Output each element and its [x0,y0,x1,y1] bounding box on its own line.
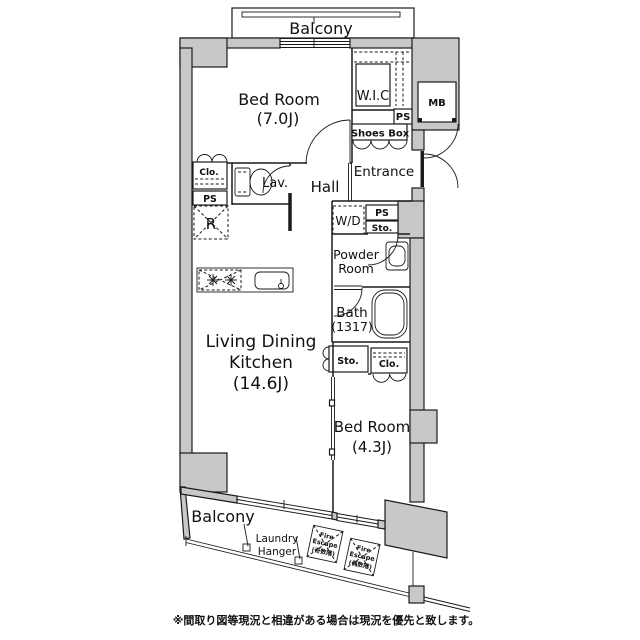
shoes-box-door-arcs [353,140,407,149]
label-ldk-line2: Kitchen [229,353,293,373]
label-washer-dryer: W/D [335,214,360,228]
closet-main-door-arcs [197,155,227,163]
faucet [279,284,284,289]
label-mb: MB [428,98,446,109]
top-window [280,38,350,48]
label-ldk-size: (14.6J) [233,374,289,394]
label-closet-main: Clo. [199,168,218,178]
floor-plan-page: Fire Escape (奇数階) Fire Escape (偶数階) Balc… [0,0,640,640]
label-wic: W.I.C [357,89,390,104]
label-closet-bed2: Clo. [379,359,399,370]
label-refrigerator: R [206,215,216,233]
label-balcony-top: Balcony [289,19,352,38]
entrance-door [421,124,459,188]
label-laundry-line1: Laundry [256,533,299,545]
lavatory-walls [232,163,290,231]
label-bedroom-second-size: (4.3J) [352,438,392,456]
entrance-door-leaf [421,151,425,187]
label-bedroom-main: Bed Room [238,90,320,109]
label-balcony-bottom: Balcony [191,507,254,526]
kitchen-counter [197,268,293,292]
label-powder-line1: Powder [333,247,380,262]
storage-ldk-door-arcs [323,347,329,371]
bedroom-main-door-arc [306,120,350,164]
label-entrance: Entrance [354,164,415,180]
closet-bed2-door-arcs [373,374,406,382]
label-ps-top: PS [396,112,411,123]
label-ps-left: PS [203,194,217,205]
bedroom2-window [337,513,378,528]
label-bedroom-second: Bed Room [334,418,411,436]
laundry-pole-1 [243,524,250,551]
label-laundry-line2: Hanger [258,546,297,558]
label-ps-mid: PS [375,208,389,219]
label-storage-ldk: Sto. [337,356,359,367]
fire-escape-hatch-even: Fire Escape (偶数階) [344,538,380,576]
label-lavatory: Lav. [262,176,288,191]
footnote: ※間取り図等現況と相違がある場合は現況を優先と致します。 [173,613,480,627]
fire-escape-hatch-odd: Fire Escape (奇数階) [307,525,343,563]
label-powder-line2: Room [338,261,374,276]
floor-plan: Fire Escape (奇数階) Fire Escape (偶数階) Balc… [0,0,640,640]
label-bath-size: (1317) [331,319,373,334]
label-shoes-box: Shoes Box [351,129,410,140]
label-bedroom-main-size: (7.0J) [257,109,300,128]
label-ldk-line1: Living Dining [206,332,317,352]
label-hall: Hall [311,178,340,196]
label-storage-mid: Sto. [372,224,392,234]
